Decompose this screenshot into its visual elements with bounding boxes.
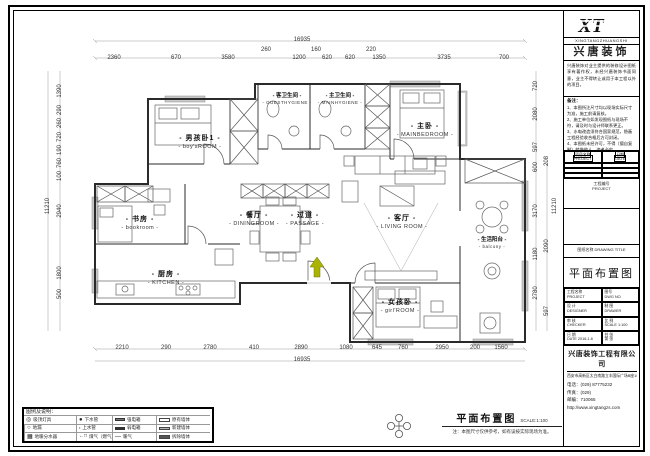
project-number-cell: 工程编号 PROJECT [564, 179, 639, 209]
dim-right-outer: 2090 [544, 239, 550, 252]
ceiling-lamp-icon: ◎ [26, 417, 31, 423]
dim-top: 620 [345, 55, 355, 61]
dim-bottom: 1080 [339, 345, 352, 351]
footer-scale: SCALE:1:100 [520, 418, 547, 423]
dim-top-small: 220 [366, 47, 376, 53]
dim-bottom: 290 [161, 345, 171, 351]
legend-grid: ◎吸顶灯具 ●下水管 强电箱 原有墙体 ○地漏 •上水管 弱电箱 新建墙体 ▦地… [24, 415, 212, 441]
brand-block: XT XINGTANGZHUANGSHI 兴唐装饰 [564, 11, 639, 61]
dim-right: 3170 [533, 204, 539, 217]
drawing-title: 平面布置图 [564, 258, 639, 288]
empty-cell [602, 173, 640, 178]
cell-sheetno: 共 张第 张 [602, 331, 640, 345]
legend-item: ←□煤气（燃气）表 [76, 432, 112, 441]
company-block: 兴唐装饰工程有限公司 西安市高新区太白南路立丰国际广场B座1004室 电话：(0… [564, 346, 639, 446]
dim-left: 290 [57, 105, 63, 115]
dim-top: 1200 [292, 55, 305, 61]
legend-item: ◎吸顶灯具 [24, 415, 76, 424]
dim-top: 3580 [221, 55, 234, 61]
dim-right: 600 [533, 162, 539, 172]
dim-right: 597 [533, 142, 539, 152]
dim-right-outer: 208 [544, 156, 550, 166]
legend-item: 新建墙体 [156, 424, 210, 433]
legend-item: 弱电箱 [112, 424, 156, 433]
signature-cell [564, 209, 639, 245]
room-label-passage: 过道PASSAGE [286, 212, 324, 228]
dim-bottom: 410 [249, 345, 259, 351]
remark-line: 3、水电改造须符合国家规范，隐蔽工程经验收合格后方可封闭。 [567, 129, 636, 141]
room-label-guest-bath: 客卫生间GUESTHYGIENE [262, 93, 311, 106]
remarks-header: 备注： [567, 98, 581, 103]
dim-top: 3735 [437, 55, 450, 61]
dim-left: 100 [57, 171, 63, 181]
legend-box: 图例及说明： ◎吸顶灯具 ●下水管 强电箱 原有墙体 ○地漏 •上水管 弱电箱 … [22, 407, 214, 443]
cell-dwgno: 图号DWG NO. [602, 288, 640, 302]
outer-frame: 男孩卧1boy'sROOM 客卫生间GUESTHYGIENE 主卫生间MAINH… [8, 5, 645, 452]
dim-bottom: 2210 [115, 345, 128, 351]
drain-pipe-icon: ● [79, 417, 83, 423]
dim-left: 260 [57, 118, 63, 128]
remark-line: 1、本图所注尺寸均以现场实际尺寸为准，施工前请复核。 [567, 105, 636, 117]
dim-left: 720 [57, 132, 63, 142]
legend-item: ○地漏 [24, 424, 76, 433]
dim-bottom: 200 [470, 345, 480, 351]
floor-plan-area: 男孩卧1boy'sROOM 客卫生间GUESTHYGIENE 主卫生间MAINH… [14, 11, 563, 446]
cell-date: 日 期DATE 2016.1.8 [564, 331, 602, 345]
water-pipe-icon: • [79, 426, 80, 430]
floor-plan-drawing [28, 31, 562, 431]
company-url: http://www.xingtangzs.com [567, 404, 637, 412]
dim-bottom: 760 [398, 345, 408, 351]
legend-item: 拆除墙体 [156, 432, 210, 441]
dim-bottom: 2780 [203, 345, 216, 351]
project-date-table: 项目名称PROJECT 日期DATE [564, 151, 639, 179]
dim-right: 2780 [533, 286, 539, 299]
dim-top: 700 [499, 55, 509, 61]
power-box-icon [115, 418, 125, 421]
room-label-master-bedroom: 主卧MAINBEDROOM [397, 123, 453, 139]
room-label-bookroom: 书房bookroom [121, 216, 158, 232]
sheet-footer-title: 平面布置图 SCALE:1:100 注：本图尺寸仅供参考，如有误按实际现场为准。 [442, 410, 562, 435]
dim-top: 1350 [372, 55, 385, 61]
dim-top: 2360 [107, 55, 120, 61]
compass-icon [386, 413, 412, 439]
dim-top-overall: 16935 [294, 37, 311, 43]
remark-line: 2、施工单位如发现图纸与现场不符，请及时与设计师联系更正。 [567, 117, 636, 129]
dim-right-overall: 11210 [552, 198, 558, 214]
dim-top-small: 160 [311, 47, 321, 53]
dim-bottom: 645 [372, 345, 382, 351]
floor-drain-icon: ○ [27, 425, 31, 431]
dim-right: 720 [533, 81, 539, 91]
approval-table: 工程名称PROJECT 图号DWG NO. 设 计DESIGNER 制 图DRA… [564, 288, 639, 346]
xt-logo-icon: XT [564, 13, 618, 37]
demolished-wall-swatch [159, 435, 170, 439]
legend-item: 强电箱 [112, 415, 156, 424]
legend-item: —暖气 [112, 432, 156, 441]
company-fax: 传真：(029) [567, 389, 637, 397]
dim-left: 760 [57, 158, 63, 168]
legend-item: •上水管 [76, 424, 112, 433]
dim-bottom: 2890 [294, 345, 307, 351]
dim-right: 2080 [533, 107, 539, 120]
dim-bottom: 1560 [494, 345, 507, 351]
company-address: 西安市高新区太白南路立丰国际广场B座1004室 [567, 371, 637, 379]
dim-left: 190 [57, 145, 63, 155]
legend-item: ▦地暖分水器 [24, 432, 76, 441]
room-label-balcony: 生活阳台balcony [478, 237, 507, 250]
room-label-main-bath: 主卫生间MAINHYGIENE [318, 93, 363, 106]
project-name-label: 项目名称PROJECT [564, 151, 602, 163]
radiator-icon: — [115, 434, 121, 440]
brand-latin: XINGTANGZHUANGSHI [564, 37, 639, 45]
room-label-dining: 餐厅DININGROOM [229, 212, 279, 228]
inner-frame: 男孩卧1boy'sROOM 客卫生间GUESTHYGIENE 主卫生间MAINH… [13, 10, 640, 447]
drawing-sheet: 男孩卧1boy'sROOM 客卫生间GUESTHYGIENE 主卫生间MAINH… [0, 0, 650, 456]
dim-left: 1390 [57, 84, 63, 97]
cell-checker: 审 核CHECKER [564, 317, 602, 331]
room-label-living: 客厅LIVING ROOM [377, 215, 428, 231]
new-wall-swatch [159, 427, 170, 431]
cell-drawer: 制 图DRAWER [602, 302, 640, 316]
dim-top: 670 [171, 55, 181, 61]
cell-scale: 比 例SCALE 1:100 [602, 317, 640, 331]
gas-meter-icon: ←□ [79, 434, 87, 439]
company-name: 兴唐装饰工程有限公司 [567, 349, 637, 369]
title-block: XT XINGTANGZHUANGSHI 兴唐装饰 兴唐装饰对业主提供的装修设计… [563, 11, 639, 446]
dim-top: 620 [322, 55, 332, 61]
legend-item: ●下水管 [76, 415, 112, 424]
room-label-girl-bedroom: 女孩卧girl'ROOM [381, 299, 420, 315]
cell-designer: 设 计DESIGNER [564, 302, 602, 316]
dim-right: 1180 [533, 248, 539, 261]
dim-bottom-overall: 16935 [294, 357, 311, 363]
weak-current-box-icon [115, 427, 125, 430]
room-label-boy-bedroom: 男孩卧1boy'sROOM [178, 135, 221, 151]
dim-bottom: 2950 [435, 345, 448, 351]
entrance-arrow-icon [310, 257, 324, 277]
dim-left: 500 [57, 289, 63, 299]
footer-note: 注：本图尺寸仅供参考，如有误按实际现场为准。 [442, 429, 562, 435]
room-label-kitchen: 厨房KITCHEN [148, 271, 184, 287]
company-phone: 电话：(029) 87775232 [567, 381, 637, 389]
remarks-block: 备注： 1、本图所注尺寸均以现场实际尺寸为准，施工前请复核。 2、施工单位如发现… [564, 97, 639, 151]
legend-item: 原有墙体 [156, 415, 210, 424]
dim-left: 2940 [57, 204, 63, 217]
brand-name: 兴唐装饰 [564, 45, 639, 60]
original-wall-swatch [159, 418, 170, 422]
cell-project: 工程名称PROJECT [564, 288, 602, 302]
copyright-note: 兴唐装饰对业主提供的装修设计图纸享有著作权，未经兴唐装饰书面同意，业主不得转让或… [564, 61, 639, 97]
dim-top-small: 260 [261, 47, 271, 53]
company-zip: 邮编：710065 [567, 396, 637, 404]
drawing-name-label: 图纸名称 DRAWING TITLE [564, 245, 639, 258]
date-label: 日期DATE [602, 151, 640, 163]
heating-manifold-icon: ▦ [27, 434, 33, 440]
dim-left: 1800 [57, 266, 63, 279]
footer-drawing-title: 平面布置图 [456, 410, 516, 425]
empty-cell [564, 173, 602, 178]
dim-left-overall: 11210 [45, 198, 51, 214]
dim-right-outer: 597 [544, 306, 550, 316]
